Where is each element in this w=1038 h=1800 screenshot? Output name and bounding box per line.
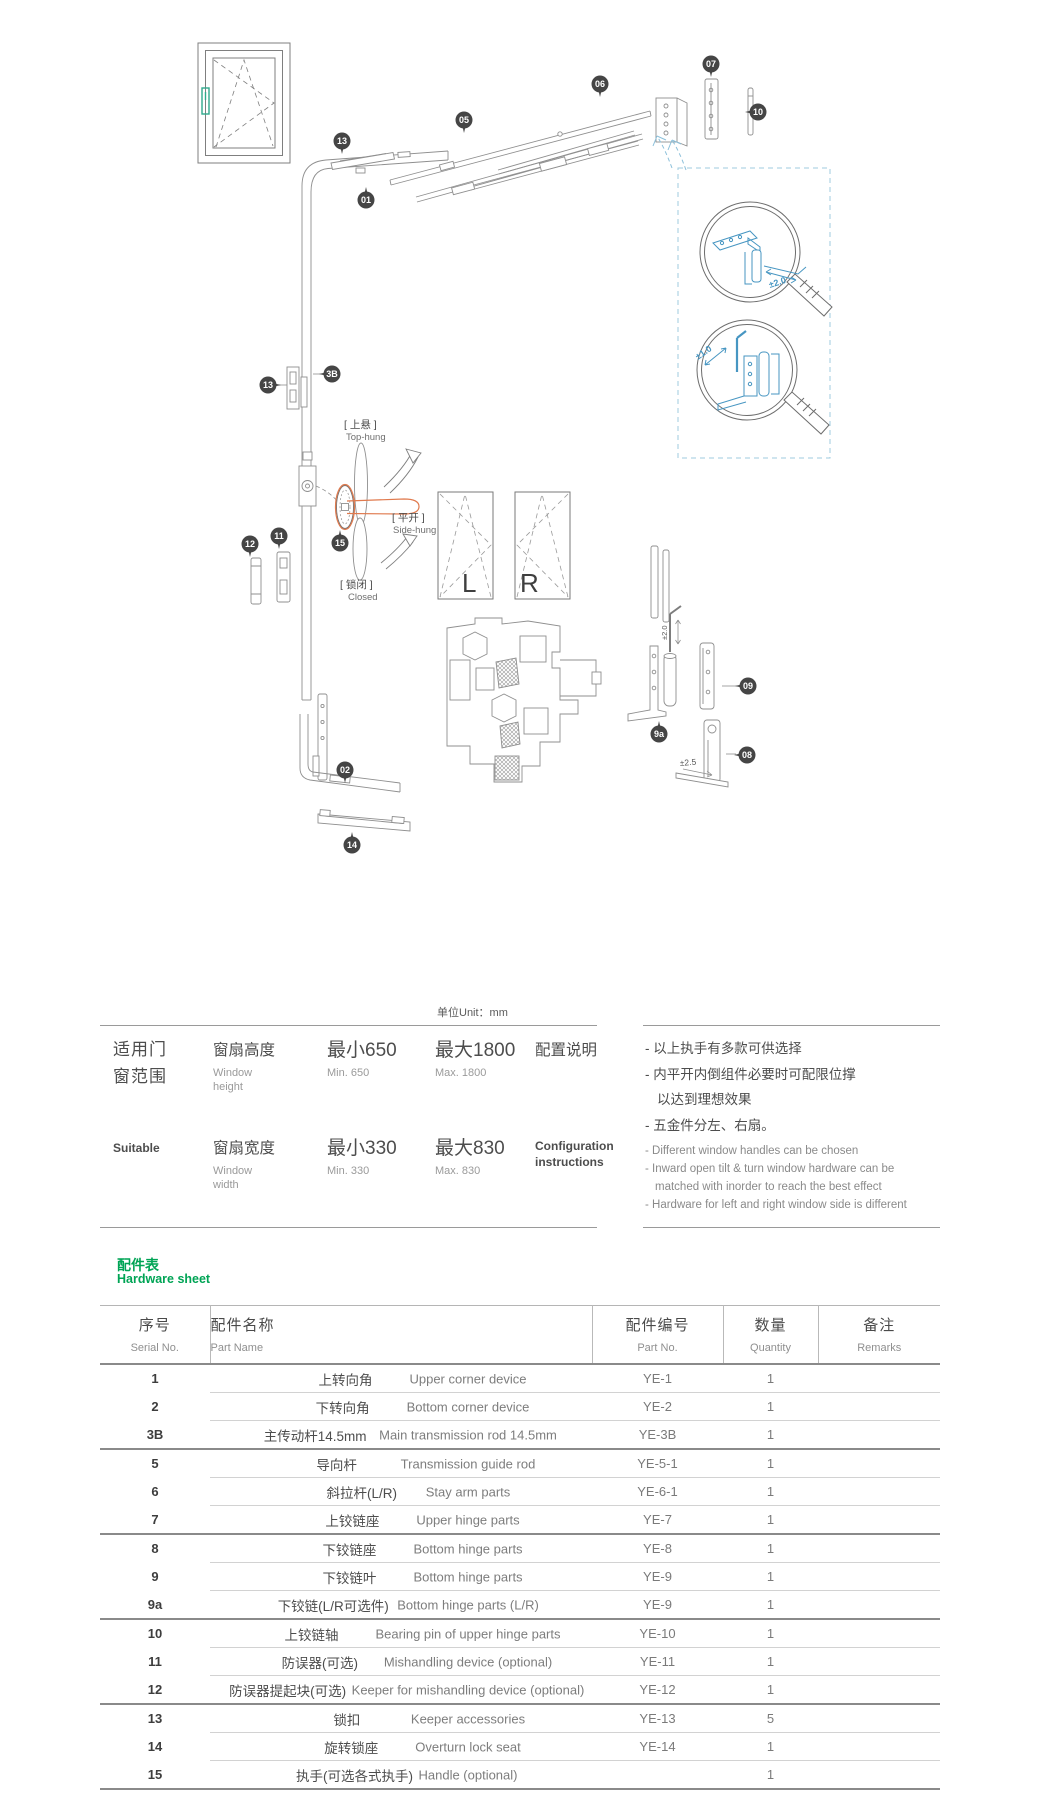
serial-cell: 1 bbox=[100, 1364, 210, 1393]
remarks-cell bbox=[818, 1591, 940, 1620]
part-name-cn: 锁扣 bbox=[277, 1709, 411, 1729]
exploded-parts-diagram: ±2.0 ±1.0 bbox=[0, 0, 1038, 880]
config-en-item: - Hardware for left and right window sid… bbox=[645, 1196, 907, 1214]
quantity-cell: 1 bbox=[723, 1563, 818, 1591]
config-cn-item: - 五金件分左、右扇。 bbox=[645, 1113, 856, 1139]
quantity-cell: 1 bbox=[723, 1449, 818, 1478]
remarks-cell bbox=[818, 1563, 940, 1591]
part-no-cell: YE-3B bbox=[592, 1421, 723, 1450]
part-no-cell: YE-6-1 bbox=[592, 1478, 723, 1506]
part-balloon-label: 11 bbox=[274, 531, 284, 541]
spec-rule-top-left bbox=[100, 1025, 597, 1026]
quantity-cell: 5 bbox=[723, 1704, 818, 1733]
part-name-en: Upper hinge parts bbox=[416, 1512, 519, 1527]
part-name-en: Bottom hinge parts (L/R) bbox=[397, 1597, 539, 1612]
remarks-cell bbox=[818, 1534, 940, 1563]
window-height-label-cn: 窗扇高度 bbox=[213, 1038, 275, 1060]
header-part-name: 配件名称 Part Name bbox=[210, 1306, 592, 1365]
spec-section-title-cn: 适用门 窗范围 bbox=[113, 1036, 167, 1090]
part-name-en: Keeper for mishandling device (optional) bbox=[352, 1682, 585, 1697]
serial-cell: 6 bbox=[100, 1478, 210, 1506]
remarks-cell bbox=[818, 1364, 940, 1393]
config-title-en: Configuration instructions bbox=[535, 1139, 614, 1170]
table-row: 5导向杆Transmission guide rodYE-5-11 bbox=[100, 1449, 940, 1478]
remarks-cell bbox=[818, 1421, 940, 1450]
part-name-cell: 下转向角Bottom corner device bbox=[210, 1393, 592, 1421]
part-name-en: Mishandling device (optional) bbox=[384, 1654, 552, 1669]
part-name-cn: 上铰链轴 bbox=[241, 1624, 375, 1644]
table-row: 14旋转锁座Overturn lock seatYE-141 bbox=[100, 1733, 940, 1761]
table-row: 2下转向角Bottom corner deviceYE-21 bbox=[100, 1393, 940, 1421]
serial-cell: 14 bbox=[100, 1733, 210, 1761]
part-name-cell: 上铰链轴Bearing pin of upper hinge parts bbox=[210, 1619, 592, 1648]
config-cn-item: 以达到理想效果 bbox=[657, 1087, 856, 1113]
config-title-cn: 配置说明 bbox=[535, 1038, 597, 1060]
config-instructions-cn: - 以上执手有多款可供选择 - 内平开内倒组件必要时可配限位撑 以达到理想效果 … bbox=[645, 1036, 856, 1138]
spec-rule-bottom-left bbox=[100, 1227, 597, 1228]
remarks-cell bbox=[818, 1393, 940, 1421]
part-no-cell: YE-10 bbox=[592, 1619, 723, 1648]
part-name-cell: 旋转锁座Overturn lock seat bbox=[210, 1733, 592, 1761]
part-name-cell: 主传动杆14.5mmMain transmission rod 14.5mm bbox=[210, 1421, 592, 1450]
serial-cell: 15 bbox=[100, 1761, 210, 1790]
top-hung-label-cn: [ 上悬 ] bbox=[344, 419, 377, 431]
remarks-cell bbox=[818, 1733, 940, 1761]
side-hung-label-cn: [ 平开 ] bbox=[392, 512, 425, 524]
max-width-value: 最大830 bbox=[435, 1133, 505, 1160]
part-balloon-label: 01 bbox=[361, 195, 371, 205]
remarks-cell bbox=[818, 1449, 940, 1478]
part-name-en: Handle (optional) bbox=[418, 1767, 517, 1782]
config-en-item: - Inward open tilt & turn window hardwar… bbox=[645, 1160, 907, 1178]
quantity-cell: 1 bbox=[723, 1364, 818, 1393]
min-height-value: 最小650 bbox=[327, 1035, 397, 1062]
rotation-arrows bbox=[381, 449, 421, 569]
part-name-cn: 导向杆 bbox=[267, 1454, 401, 1474]
part-balloon-label: 10 bbox=[753, 107, 763, 117]
detail-magnifier-top: ±2.0 bbox=[700, 202, 832, 316]
part-name-cn: 旋转锁座 bbox=[281, 1737, 415, 1757]
part-name-cell: 导向杆Transmission guide rod bbox=[210, 1449, 592, 1478]
header-serial: 序号 Serial No. bbox=[100, 1306, 210, 1365]
part-balloon-label: 02 bbox=[340, 765, 350, 775]
part-name-en: Bearing pin of upper hinge parts bbox=[375, 1626, 560, 1641]
part-name-en: Stay arm parts bbox=[426, 1484, 511, 1499]
part-no-cell: YE-8 bbox=[592, 1534, 723, 1563]
part-name-cell: 上铰链座Upper hinge parts bbox=[210, 1506, 592, 1535]
part-balloon-label: 09 bbox=[743, 681, 753, 691]
part-balloon-label: 12 bbox=[245, 539, 255, 549]
table-row: 1上转向角Upper corner deviceYE-11 bbox=[100, 1364, 940, 1393]
hardware-parts-table: 序号 Serial No. 配件名称 Part Name 配件编号 Part N… bbox=[100, 1305, 940, 1790]
part-no-cell: YE-7 bbox=[592, 1506, 723, 1535]
quantity-cell: 1 bbox=[723, 1591, 818, 1620]
part-name-en: Keeper accessories bbox=[411, 1711, 525, 1726]
serial-cell: 2 bbox=[100, 1393, 210, 1421]
part-name-cell: 上转向角Upper corner device bbox=[210, 1364, 592, 1393]
header-quantity: 数量 Quantity bbox=[723, 1306, 818, 1365]
serial-cell: 11 bbox=[100, 1648, 210, 1676]
table-row: 10上铰链轴Bearing pin of upper hinge partsYE… bbox=[100, 1619, 940, 1648]
part-name-cn: 上转向角 bbox=[275, 1369, 409, 1389]
part-name-cell: 斜拉杆(L/R)Stay arm parts bbox=[210, 1478, 592, 1506]
quantity-cell: 1 bbox=[723, 1534, 818, 1563]
window-height-label-en: Window height bbox=[213, 1066, 271, 1095]
part-name-cn: 防误器提起块(可选) bbox=[218, 1680, 352, 1700]
quantity-cell: 1 bbox=[723, 1421, 818, 1450]
part-name-cn: 下铰链叶 bbox=[279, 1567, 413, 1587]
part-name-cn: 上铰链座 bbox=[282, 1510, 416, 1530]
window-width-label-cn: 窗扇宽度 bbox=[213, 1136, 275, 1158]
table-row: 3B主传动杆14.5mmMain transmission rod 14.5mm… bbox=[100, 1421, 940, 1450]
hardware-sheet-page: ±2.0 ±1.0 bbox=[0, 0, 1038, 1800]
hinge-adjustment-value: ±2.0 bbox=[660, 625, 669, 640]
config-instructions-en: - Different window handles can be chosen… bbox=[645, 1142, 907, 1214]
left-letter: L bbox=[462, 568, 476, 598]
closed-label-cn: [ 锁闭 ] bbox=[340, 578, 373, 591]
left-window-diagram: L bbox=[438, 492, 493, 599]
config-en-item: matched with inorder to reach the best e… bbox=[655, 1178, 907, 1196]
min-width-value: 最小330 bbox=[327, 1133, 397, 1160]
remarks-cell bbox=[818, 1619, 940, 1648]
part-no-cell bbox=[592, 1761, 723, 1790]
header-remarks: 备注 Remarks bbox=[818, 1306, 940, 1365]
part-no-cell: YE-9 bbox=[592, 1591, 723, 1620]
spec-section-title-en: Suitable bbox=[113, 1141, 160, 1157]
quantity-cell: 1 bbox=[723, 1478, 818, 1506]
part-name-cn: 下转向角 bbox=[273, 1397, 407, 1417]
remarks-cell bbox=[818, 1648, 940, 1676]
serial-cell: 8 bbox=[100, 1534, 210, 1563]
part-balloon-label: 3B bbox=[326, 369, 338, 379]
header-part-no: 配件编号 Part No. bbox=[592, 1306, 723, 1365]
part-balloon-label: 05 bbox=[459, 115, 469, 125]
remarks-cell bbox=[818, 1478, 940, 1506]
serial-cell: 3B bbox=[100, 1421, 210, 1450]
right-window-diagram: R bbox=[515, 492, 570, 599]
window-schematic-icon bbox=[198, 43, 290, 163]
remarks-cell bbox=[818, 1761, 940, 1790]
part-no-cell: YE-12 bbox=[592, 1676, 723, 1705]
serial-cell: 5 bbox=[100, 1449, 210, 1478]
detail-magnifier-bottom: ±1.0 bbox=[693, 320, 829, 434]
part-no-cell: YE-13 bbox=[592, 1704, 723, 1733]
max-height-value: 最大1800 bbox=[435, 1035, 515, 1062]
serial-cell: 9 bbox=[100, 1563, 210, 1591]
quantity-cell: 1 bbox=[723, 1393, 818, 1421]
table-row: 9a下铰链(L/R可选件)Bottom hinge parts (L/R)YE-… bbox=[100, 1591, 940, 1620]
part-name-cell: 下铰链叶Bottom hinge parts bbox=[210, 1563, 592, 1591]
part-name-en: Bottom corner device bbox=[407, 1399, 530, 1414]
part-balloon-label: 13 bbox=[263, 380, 273, 390]
min-width-en: Min. 330 bbox=[327, 1164, 369, 1178]
table-row: 15执手(可选各式执手)Handle (optional)1 bbox=[100, 1761, 940, 1790]
part-name-cn: 执手(可选各式执手) bbox=[284, 1765, 418, 1785]
part-name-en: Overturn lock seat bbox=[415, 1739, 521, 1754]
part-no-cell: YE-2 bbox=[592, 1393, 723, 1421]
config-cn-item: - 内平开内倒组件必要时可配限位撑 bbox=[645, 1062, 856, 1088]
part-name-cn: 下铰链(L/R可选件) bbox=[263, 1595, 397, 1615]
remarks-cell bbox=[818, 1704, 940, 1733]
serial-cell: 12 bbox=[100, 1676, 210, 1705]
part-balloon-label: 9a bbox=[654, 729, 665, 739]
part-balloon-label: 13 bbox=[337, 136, 347, 146]
unit-note: 单位Unit：mm bbox=[437, 1004, 508, 1020]
table-row: 8下铰链座Bottom hinge partsYE-81 bbox=[100, 1534, 940, 1563]
remarks-cell bbox=[818, 1506, 940, 1535]
max-width-en: Max. 830 bbox=[435, 1164, 480, 1178]
serial-cell: 13 bbox=[100, 1704, 210, 1733]
side-hung-label-en: Side-hung bbox=[393, 525, 436, 536]
quantity-cell: 1 bbox=[723, 1733, 818, 1761]
quantity-cell: 1 bbox=[723, 1761, 818, 1790]
part-no-cell: YE-11 bbox=[592, 1648, 723, 1676]
quantity-cell: 1 bbox=[723, 1648, 818, 1676]
part-name-en: Bottom hinge parts bbox=[413, 1541, 522, 1556]
quantity-cell: 1 bbox=[723, 1506, 818, 1535]
part-name-cell: 执手(可选各式执手)Handle (optional) bbox=[210, 1761, 592, 1790]
serial-cell: 7 bbox=[100, 1506, 210, 1535]
min-height-en: Min. 650 bbox=[327, 1066, 369, 1080]
window-width-label-en: Window width bbox=[213, 1164, 271, 1193]
profile-cross-section bbox=[447, 618, 601, 782]
config-en-item: - Different window handles can be chosen bbox=[645, 1142, 907, 1160]
table-header-row: 序号 Serial No. 配件名称 Part Name 配件编号 Part N… bbox=[100, 1306, 940, 1365]
part-no-cell: YE-5-1 bbox=[592, 1449, 723, 1478]
table-row: 7上铰链座Upper hinge partsYE-71 bbox=[100, 1506, 940, 1535]
part-balloon-label: 14 bbox=[347, 840, 357, 850]
table-row: 11防误器(可选)Mishandling device (optional)YE… bbox=[100, 1648, 940, 1676]
part-name-cn: 下铰链座 bbox=[279, 1539, 413, 1559]
serial-cell: 9a bbox=[100, 1591, 210, 1620]
part-balloon-label: 08 bbox=[742, 750, 752, 760]
part-balloon-label: 06 bbox=[595, 79, 605, 89]
part-no-cell: YE-1 bbox=[592, 1364, 723, 1393]
part-no-cell: YE-14 bbox=[592, 1733, 723, 1761]
part-no-cell: YE-9 bbox=[592, 1563, 723, 1591]
table-row: 6斜拉杆(L/R)Stay arm partsYE-6-11 bbox=[100, 1478, 940, 1506]
quantity-cell: 1 bbox=[723, 1676, 818, 1705]
part-name-cn: 斜拉杆(L/R) bbox=[292, 1482, 426, 1502]
closed-label-en: Closed bbox=[348, 592, 378, 603]
max-height-en: Max. 1800 bbox=[435, 1066, 486, 1080]
part-name-en: Upper corner device bbox=[409, 1371, 526, 1386]
top-hung-label-en: Top-hung bbox=[346, 432, 386, 443]
remarks-cell bbox=[818, 1676, 940, 1705]
rod-adjustment-value: ±2.5 bbox=[679, 757, 697, 768]
part-name-cn: 主传动杆14.5mm bbox=[245, 1425, 379, 1445]
part-name-cell: 下铰链(L/R可选件)Bottom hinge parts (L/R) bbox=[210, 1591, 592, 1620]
part-name-cn: 防误器(可选) bbox=[250, 1652, 384, 1672]
handle-rotation-diagram: [ 上悬 ] Top-hung [ 平开 ] Side-hung [ 锁闭 ] … bbox=[336, 419, 437, 603]
table-row: 13锁扣Keeper accessoriesYE-135 bbox=[100, 1704, 940, 1733]
part-balloon-label: 07 bbox=[706, 59, 716, 69]
spec-rule-top-right bbox=[643, 1025, 940, 1026]
table-row: 12防误器提起块(可选)Keeper for mishandling devic… bbox=[100, 1676, 940, 1705]
part-name-cell: 防误器(可选)Mishandling device (optional) bbox=[210, 1648, 592, 1676]
quantity-cell: 1 bbox=[723, 1619, 818, 1648]
right-letter: R bbox=[520, 568, 539, 598]
table-row: 9下铰链叶Bottom hinge partsYE-91 bbox=[100, 1563, 940, 1591]
part-name-cell: 防误器提起块(可选)Keeper for mishandling device … bbox=[210, 1676, 592, 1705]
part-name-en: Transmission guide rod bbox=[401, 1456, 536, 1471]
part-balloon-label: 15 bbox=[335, 538, 345, 548]
serial-cell: 10 bbox=[100, 1619, 210, 1648]
part-name-cell: 锁扣Keeper accessories bbox=[210, 1704, 592, 1733]
part-name-cell: 下铰链座Bottom hinge parts bbox=[210, 1534, 592, 1563]
config-cn-item: - 以上执手有多款可供选择 bbox=[645, 1036, 856, 1062]
part-name-en: Bottom hinge parts bbox=[413, 1569, 522, 1584]
hardware-sheet-title-en: Hardware sheet bbox=[117, 1272, 210, 1286]
part-name-en: Main transmission rod 14.5mm bbox=[379, 1427, 557, 1442]
spec-rule-bottom-right bbox=[643, 1227, 940, 1228]
